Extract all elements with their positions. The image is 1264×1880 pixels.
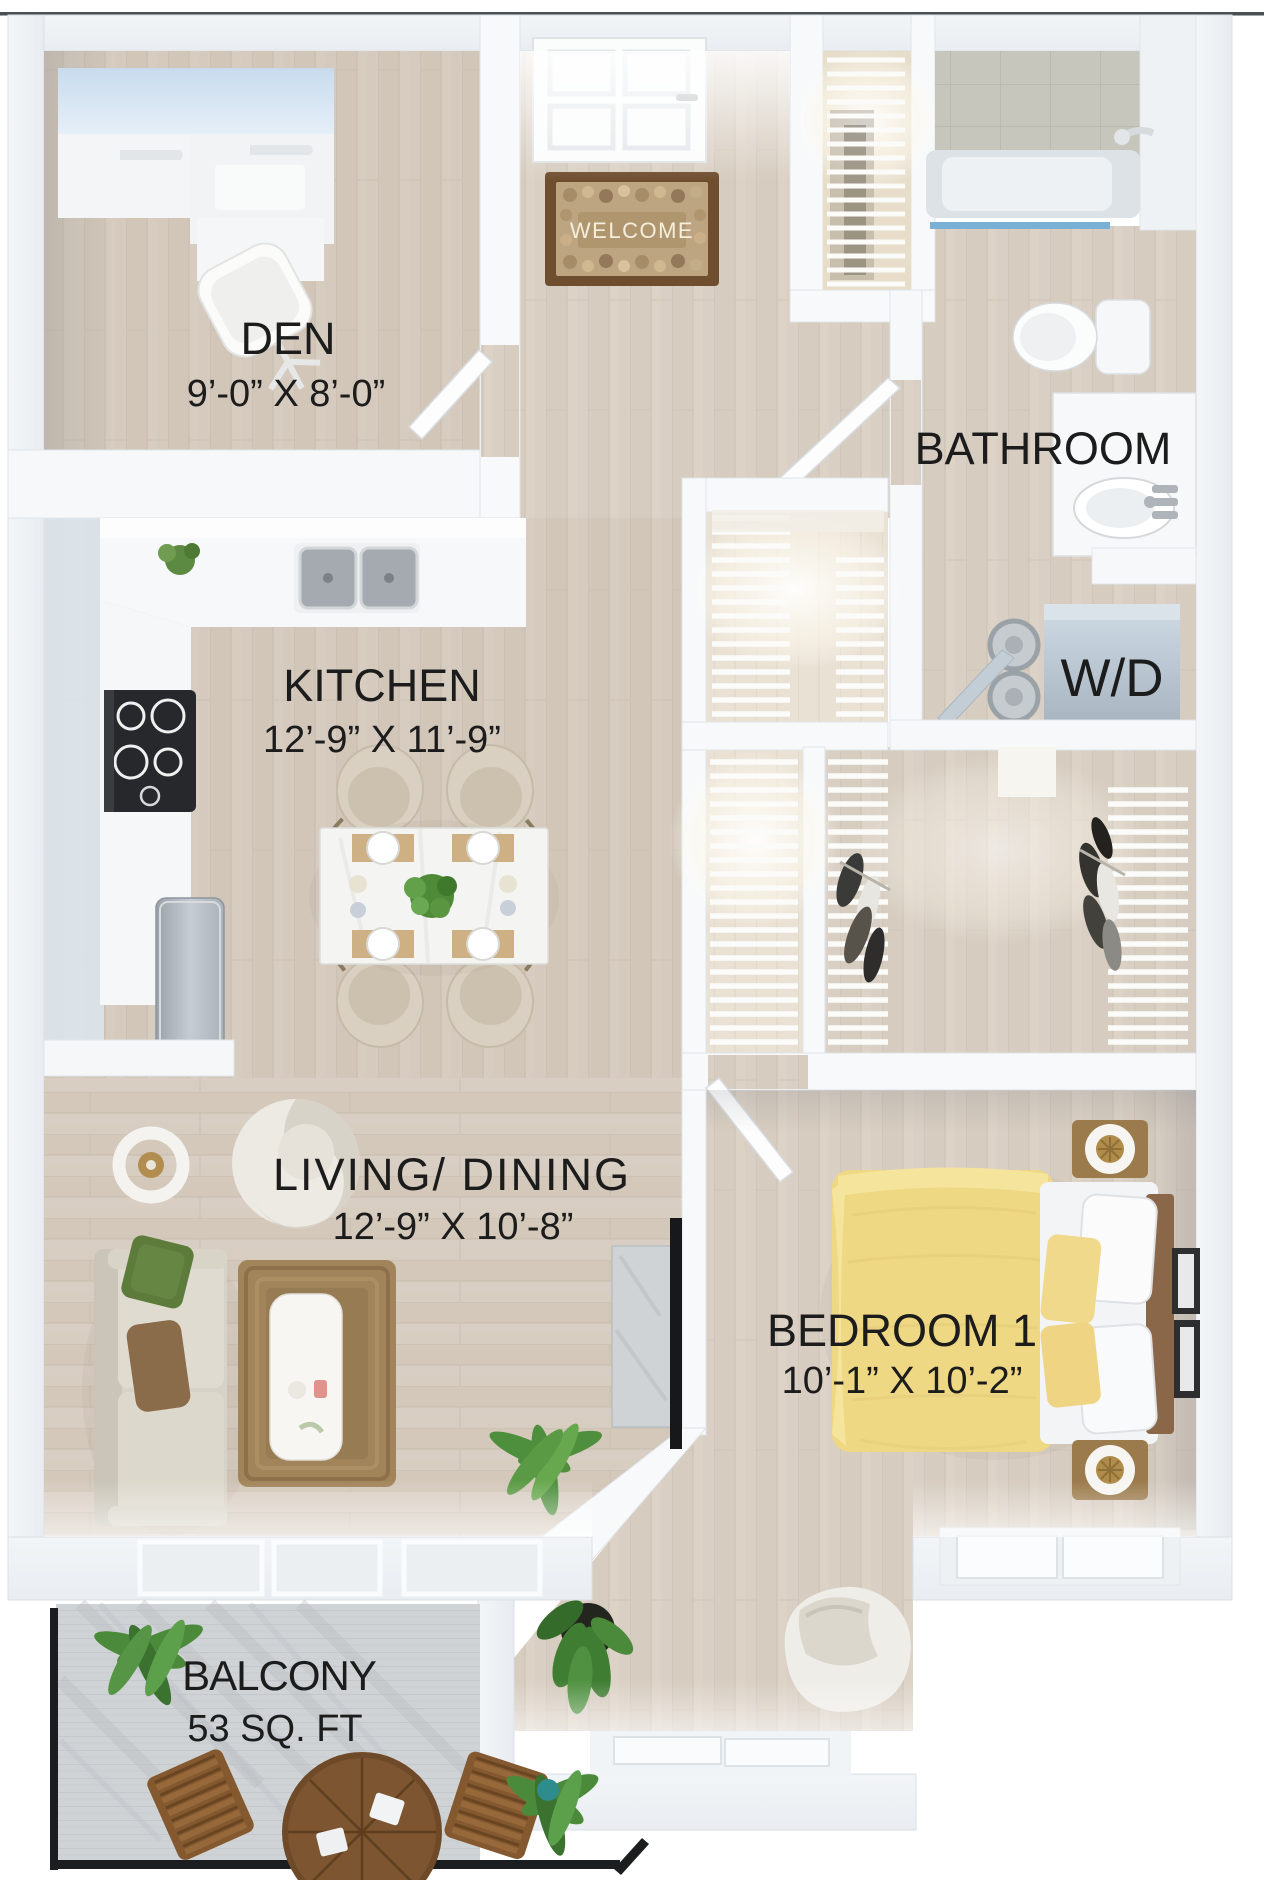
svg-text:10’-1” X 10’-2”: 10’-1” X 10’-2”	[782, 1360, 1023, 1402]
svg-text:WELCOME: WELCOME	[570, 218, 694, 243]
svg-text:LIVING/ DINING: LIVING/ DINING	[273, 1149, 631, 1200]
svg-text:BALCONY: BALCONY	[182, 1652, 377, 1699]
svg-text:W/D: W/D	[1060, 649, 1163, 708]
svg-text:53 SQ. FT: 53 SQ. FT	[187, 1708, 362, 1750]
svg-text:BATHROOM: BATHROOM	[915, 423, 1172, 474]
svg-text:12’-9” X 10’-8”: 12’-9” X 10’-8”	[333, 1206, 574, 1248]
svg-text:12’-9” X 11’-9”: 12’-9” X 11’-9”	[263, 719, 501, 761]
svg-text:BEDROOM 1: BEDROOM 1	[767, 1305, 1037, 1356]
svg-text:KITCHEN: KITCHEN	[283, 660, 481, 711]
svg-text:DEN: DEN	[240, 313, 335, 364]
svg-text:9’-0” X 8’-0”: 9’-0” X 8’-0”	[187, 373, 386, 415]
